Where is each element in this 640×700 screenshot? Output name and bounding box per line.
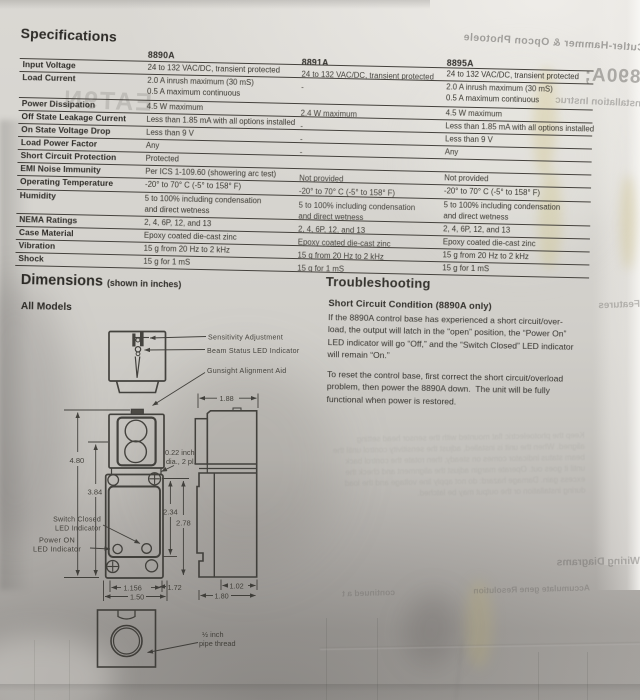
svg-text:dia., 2 pl.: dia., 2 pl. <box>166 457 196 466</box>
svg-text:1.80: 1.80 <box>215 592 229 601</box>
svg-text:4.80: 4.80 <box>70 456 85 465</box>
svg-text:LED Indicator: LED Indicator <box>55 526 101 533</box>
svg-text:Power ON: Power ON <box>39 536 75 545</box>
svg-text:Beam Status LED Indicator: Beam Status LED Indicator <box>207 348 300 355</box>
svg-text:LED Indicator: LED Indicator <box>33 545 81 554</box>
svg-text:pipe thread: pipe thread <box>199 639 236 648</box>
svg-text:1.50: 1.50 <box>130 593 144 602</box>
svg-text:1.02: 1.02 <box>230 582 244 591</box>
svg-text:1.88: 1.88 <box>220 394 234 403</box>
svg-text:3.84: 3.84 <box>88 488 103 497</box>
svg-text:0.22 inch: 0.22 inch <box>165 448 195 457</box>
svg-text:2.34: 2.34 <box>163 508 178 517</box>
svg-text:½ inch: ½ inch <box>202 630 224 639</box>
svg-text:Switch Closed: Switch Closed <box>53 517 101 524</box>
svg-text:1.72: 1.72 <box>168 583 182 592</box>
svg-text:Gunsight Alignment Aid: Gunsight Alignment Aid <box>207 368 286 375</box>
svg-text:2.78: 2.78 <box>176 519 191 528</box>
svg-text:1.156: 1.156 <box>124 584 142 593</box>
svg-text:Sensitivity Adjustment: Sensitivity Adjustment <box>208 335 283 342</box>
